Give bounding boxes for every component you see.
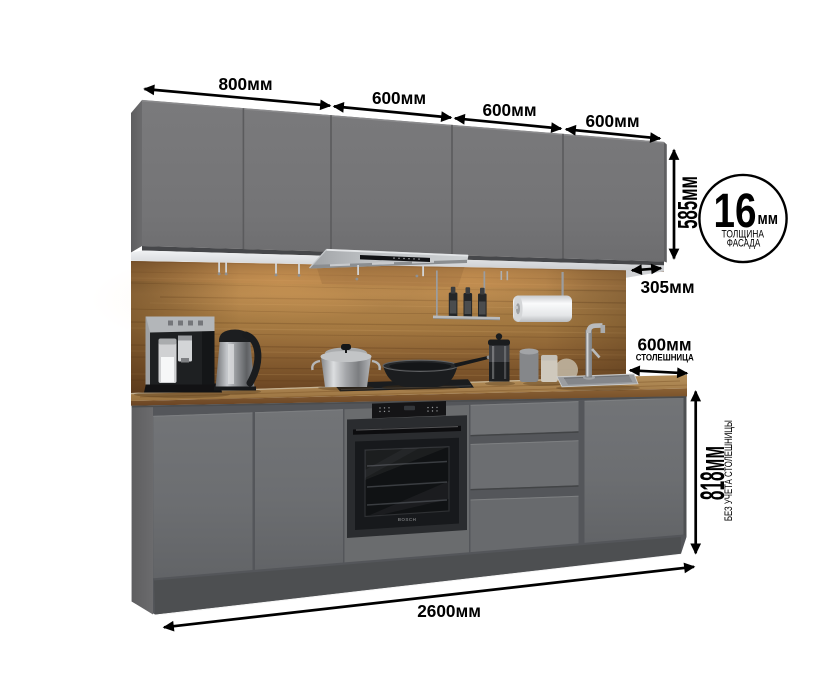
- svg-text:ФАСАДА: ФАСАДА: [727, 238, 761, 250]
- svg-text:585мм: 585мм: [672, 176, 703, 229]
- svg-text:БЕЗ УЧЕТА СТОЛЕШНИЦЫ: БЕЗ УЧЕТА СТОЛЕШНИЦЫ: [723, 420, 735, 521]
- svg-text:600мм: 600мм: [482, 100, 536, 120]
- svg-text:СТОЛЕШНИЦА: СТОЛЕШНИЦА: [636, 353, 695, 363]
- svg-text:305мм: 305мм: [640, 277, 694, 297]
- svg-text:мм: мм: [758, 210, 779, 228]
- svg-text:2600мм: 2600мм: [417, 601, 481, 621]
- svg-text:600мм: 600мм: [372, 88, 426, 108]
- svg-text:800мм: 800мм: [218, 74, 272, 94]
- svg-text:600мм: 600мм: [637, 335, 691, 355]
- svg-text:600мм: 600мм: [585, 111, 639, 131]
- svg-text:BOSCH: BOSCH: [398, 517, 417, 522]
